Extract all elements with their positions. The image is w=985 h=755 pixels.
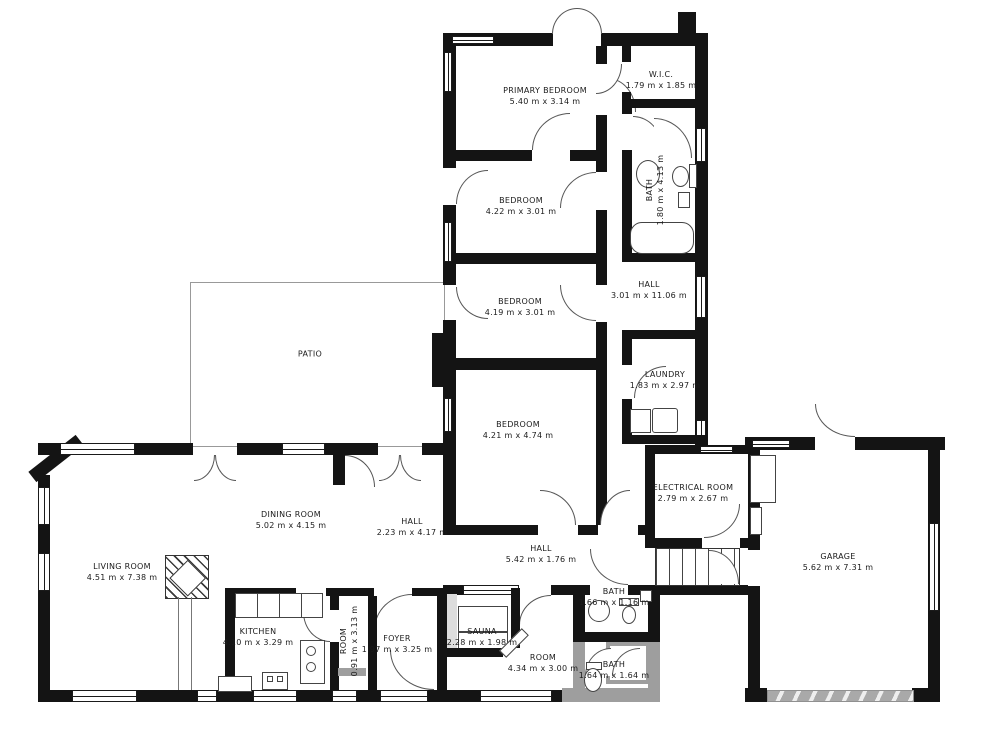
wall xyxy=(622,339,632,365)
wall xyxy=(437,648,503,657)
burner xyxy=(306,646,316,656)
room-label-garage: GARAGE5.62 m x 7.31 m xyxy=(803,552,874,574)
wall xyxy=(456,253,607,264)
wall xyxy=(357,690,380,702)
wall xyxy=(855,437,945,450)
wall xyxy=(326,588,374,596)
toilet-bowl xyxy=(584,668,602,692)
room-label-primary-bedroom: PRIMARY BEDROOM5.40 m x 3.14 m xyxy=(503,86,587,108)
wall xyxy=(912,688,940,702)
wall xyxy=(578,525,598,535)
wall xyxy=(422,443,443,455)
wall xyxy=(622,46,631,62)
bathtub xyxy=(630,222,694,254)
door-arc xyxy=(560,285,596,321)
wall xyxy=(237,443,282,455)
door-arc xyxy=(704,504,740,538)
wall xyxy=(622,99,708,108)
window xyxy=(696,128,706,162)
wall xyxy=(443,447,456,535)
door-arc xyxy=(519,595,551,625)
wall xyxy=(137,690,197,702)
door-arc xyxy=(634,366,666,398)
garage-cabinet xyxy=(750,507,762,535)
window xyxy=(444,52,452,92)
wall xyxy=(601,33,708,46)
window xyxy=(282,443,325,455)
room-label-hall-1: HALL3.01 m x 11.06 m xyxy=(611,280,687,302)
window xyxy=(197,690,217,702)
door-arc xyxy=(379,455,400,481)
toilet-bowl xyxy=(622,606,636,624)
wall xyxy=(596,115,607,172)
wall xyxy=(135,443,193,455)
window xyxy=(444,222,452,262)
washer xyxy=(652,408,678,433)
sink-basin xyxy=(267,676,273,682)
bath-cabinet xyxy=(640,590,652,602)
door-arc xyxy=(215,455,236,481)
door-arc xyxy=(374,594,412,630)
wall xyxy=(552,690,562,702)
window xyxy=(929,523,939,611)
chimney-block xyxy=(678,12,696,33)
window xyxy=(253,690,297,702)
door-arc xyxy=(456,170,488,204)
wall xyxy=(428,690,480,702)
wall xyxy=(645,538,702,548)
window xyxy=(696,276,706,318)
door-arc xyxy=(194,455,215,481)
wall xyxy=(622,253,708,262)
shower-door-arc xyxy=(654,118,692,158)
fireplace xyxy=(165,555,209,599)
shelf xyxy=(338,668,366,676)
window xyxy=(480,690,552,702)
wall xyxy=(443,525,538,535)
wall xyxy=(456,150,532,161)
sauna-bench xyxy=(458,606,508,632)
room-label-hall-2: HALL2.23 m x 4.17 m xyxy=(377,517,448,539)
window xyxy=(700,446,733,453)
sink xyxy=(588,600,610,622)
wall xyxy=(297,690,332,702)
door-arc xyxy=(345,455,375,487)
wall xyxy=(368,596,377,690)
wall xyxy=(748,586,760,688)
window xyxy=(444,398,452,432)
wall xyxy=(437,588,447,690)
wall xyxy=(333,443,345,485)
room-label-hall-3: HALL5.42 m x 1.76 m xyxy=(506,544,577,566)
sink-basin xyxy=(277,676,283,682)
room-label-room-1: ROOM0.91 m x 3.13 m xyxy=(339,606,361,677)
room-label-living: LIVING ROOM4.51 m x 7.38 m xyxy=(87,562,158,584)
sauna-panel xyxy=(447,594,457,652)
floor-plan: PRIMARY BEDROOM5.40 m x 3.14 m W.I.C.1.7… xyxy=(0,0,985,755)
door-arc xyxy=(815,404,855,437)
room-label-bedroom-2: BEDROOM4.19 m x 3.01 m xyxy=(485,297,556,319)
wall xyxy=(432,333,456,387)
window xyxy=(452,36,494,44)
door-arc xyxy=(390,650,434,690)
room-label-bedroom-3: BEDROOM4.21 m x 4.74 m xyxy=(483,420,554,442)
door-arc xyxy=(577,8,602,34)
kitchen-sink xyxy=(262,672,288,690)
wall xyxy=(622,330,708,339)
door-arc xyxy=(560,172,596,208)
garage-door xyxy=(767,690,914,702)
room-label-dining: DINING ROOM5.02 m x 4.15 m xyxy=(256,510,327,532)
wall xyxy=(456,358,607,370)
wall xyxy=(38,690,72,702)
kitchen-island xyxy=(218,676,252,692)
toilet-tank xyxy=(689,164,697,188)
laundry-counter xyxy=(630,409,651,433)
room-label-electrical: ELECTRICAL ROOM2.79 m x 2.67 m xyxy=(653,483,734,505)
window xyxy=(38,487,50,525)
room-label-wic: W.I.C.1.79 m x 1.85 m xyxy=(626,70,697,92)
window xyxy=(380,690,428,702)
wall xyxy=(745,688,767,702)
door-arc xyxy=(540,490,576,525)
wall xyxy=(695,33,708,445)
door-arc xyxy=(456,287,488,319)
wall xyxy=(596,322,607,525)
door-arc xyxy=(552,8,577,34)
gray-wall xyxy=(573,642,585,700)
door-arc xyxy=(400,455,421,481)
window xyxy=(72,690,137,702)
wall xyxy=(330,642,339,690)
wall xyxy=(596,210,607,285)
room-label-bedroom-1: BEDROOM4.22 m x 3.01 m xyxy=(486,196,557,218)
wall xyxy=(330,596,339,610)
burner xyxy=(306,662,316,672)
bath-cabinet xyxy=(678,192,690,208)
garage-cabinet xyxy=(750,455,776,503)
toilet-tank xyxy=(619,598,639,606)
door-arc xyxy=(532,113,570,150)
window xyxy=(752,440,790,448)
wall xyxy=(622,108,632,114)
chimney-column xyxy=(178,597,192,690)
wall xyxy=(645,454,655,548)
wall xyxy=(622,435,708,444)
room-label-room-2: ROOM4.34 m x 3.00 m xyxy=(508,653,579,675)
kitchen-cabinets xyxy=(235,593,323,618)
door-arc xyxy=(590,549,628,585)
window xyxy=(60,443,135,455)
window xyxy=(332,690,357,702)
patio-outline xyxy=(190,282,445,447)
sink xyxy=(636,160,660,188)
window xyxy=(38,553,50,591)
toilet-bowl xyxy=(672,166,689,187)
wall xyxy=(28,435,83,482)
